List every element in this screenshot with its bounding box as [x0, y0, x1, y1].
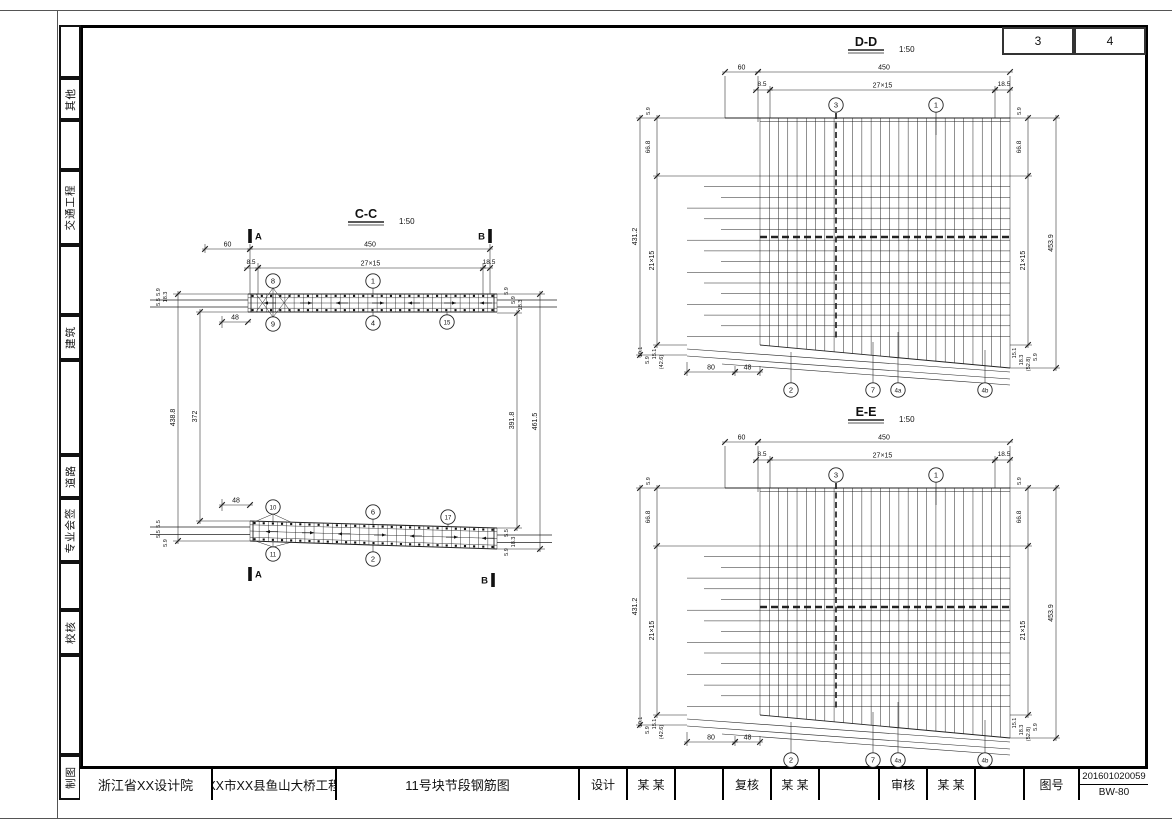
dim-label: 431.2 — [632, 598, 639, 616]
rebar-callout-number: 1 — [934, 101, 938, 110]
rebar-dot — [354, 525, 356, 527]
rebar-dot — [345, 525, 347, 527]
drawing-line — [273, 514, 291, 522]
rebar-dot — [263, 522, 265, 524]
rebar-dot — [464, 309, 466, 311]
rebar-dot — [362, 295, 364, 297]
rebar-dot — [390, 309, 392, 311]
rebar-dot — [252, 309, 254, 311]
dim-label: 450 — [878, 435, 890, 442]
rebar-dot — [299, 523, 301, 525]
rebar-dot — [371, 295, 373, 297]
drawing-sheet: 3 4 其他交通工程建筑道路专业会签校核制图 浙江省XX设计院 XX市XX县鱼山… — [0, 0, 1172, 829]
sidebar-cell-label: 专业会签 — [63, 507, 78, 553]
section-cut-letter: B — [478, 232, 485, 243]
rebar-dot — [464, 295, 466, 297]
dim-label: 21×15 — [649, 621, 656, 641]
flow-arrow — [408, 301, 412, 304]
view-title: E-E — [856, 405, 877, 419]
dim-label: 431.2 — [632, 228, 639, 246]
rebar-dot — [261, 309, 263, 311]
dim-label: 15.1 — [1012, 348, 1018, 359]
dim-label: 5.9 — [504, 287, 510, 295]
flow-arrow — [382, 533, 386, 536]
section-cut-marker — [491, 573, 495, 587]
rebar-dot — [281, 523, 283, 525]
dim-label: 5.9 — [1017, 477, 1023, 485]
rebar-callout-number: 4 — [371, 319, 375, 328]
dim-label: 453.9 — [1048, 604, 1055, 622]
dim-label: 450 — [878, 65, 890, 72]
rebar-dot — [382, 526, 384, 528]
rebar-dot — [353, 295, 355, 297]
view-scale: 1:50 — [399, 217, 415, 226]
rebar-dot — [473, 528, 475, 530]
dim-label: 21×15 — [1020, 251, 1027, 271]
flow-arrow — [264, 301, 268, 304]
sidebar-cell-10: 校核 — [59, 610, 81, 655]
rebar-dot — [327, 541, 329, 543]
rebar-callout-number: 2 — [371, 555, 375, 564]
flow-arrow — [338, 532, 342, 535]
rebar-dot — [473, 295, 475, 297]
section-cut-letter: A — [255, 232, 262, 243]
dim-label: 80 — [707, 365, 715, 372]
rebar-callout-number: 8 — [271, 277, 275, 286]
dim-label: 8.5 — [246, 259, 255, 266]
sidebar-cell-3: 交通工程 — [59, 170, 81, 245]
rebar-callout-number: 7 — [871, 386, 875, 395]
dim-label: 5.9 — [504, 548, 510, 556]
rebar-dot — [254, 538, 256, 540]
dim-label: 15.1 — [1012, 718, 1018, 729]
rebar-dot — [327, 524, 329, 526]
dim-label: 60 — [738, 65, 746, 72]
section-cut-marker — [248, 229, 252, 243]
rebar-callout-number: 3 — [834, 471, 838, 480]
drawing-line — [687, 719, 1010, 742]
dim-label: 48 — [232, 498, 240, 505]
dim-label: 18.3 — [518, 300, 524, 311]
dim-label: 48 — [744, 365, 752, 372]
rebar-dot — [335, 309, 337, 311]
rebar-dot — [353, 309, 355, 311]
dim-label: 21×15 — [1020, 621, 1027, 641]
dim-label: 80 — [707, 735, 715, 742]
rebar-dot — [318, 540, 320, 542]
rebar-dot — [446, 527, 448, 529]
rebar-dot — [409, 526, 411, 528]
dim-label: 18.3 — [163, 292, 169, 303]
view-title: C-C — [355, 207, 377, 221]
rebar-dot — [454, 295, 456, 297]
rebar-dot — [325, 309, 327, 311]
dim-label: 66.8 — [1016, 140, 1023, 153]
view-scale: 1:50 — [899, 45, 915, 54]
rebar-dot — [307, 309, 309, 311]
view-scale: 1:50 — [899, 415, 915, 424]
rebar-dot — [252, 295, 254, 297]
rebar-dot — [491, 295, 493, 297]
rebar-dot — [436, 295, 438, 297]
dim-label: 18.3 — [1019, 355, 1025, 366]
dim-label: 5.5 — [156, 298, 162, 306]
drawing-line — [256, 294, 273, 317]
flow-arrow — [380, 301, 384, 304]
rebar-callout-number: 4a — [895, 759, 902, 765]
dim-label: (42.6) — [659, 355, 665, 370]
rebar-dot — [391, 526, 393, 528]
rebar-dot — [482, 309, 484, 311]
dim-label: 5.9 — [645, 356, 651, 364]
rebar-dot — [473, 309, 475, 311]
rebar-dot — [409, 543, 411, 545]
rebar-dot — [290, 523, 292, 525]
rebar-callout-number: 10 — [270, 506, 277, 512]
dim-label: 391.8 — [509, 412, 516, 430]
rebar-dot — [316, 295, 318, 297]
drawing-line — [722, 734, 1010, 755]
dim-label: 5.9 — [646, 107, 652, 115]
rebar-callout-number: 17 — [445, 516, 452, 522]
rebar-dot — [308, 540, 310, 542]
flow-arrow — [266, 530, 270, 533]
dim-label: 5.9 — [1033, 353, 1039, 361]
sidebar-cell-7: 道路 — [59, 455, 81, 498]
rebar-callout-number: 4b — [982, 389, 989, 395]
dim-label: 5.9 — [646, 477, 652, 485]
rebar-dot — [491, 309, 493, 311]
rebar-dot — [382, 542, 384, 544]
dim-label: 48 — [744, 735, 752, 742]
sidebar-empty-cell — [59, 360, 81, 455]
rebar-dot — [381, 295, 383, 297]
rebar-dot — [491, 546, 493, 548]
rebar-dot — [281, 539, 283, 541]
sidebar-cell-label: 校核 — [63, 621, 78, 644]
rebar-callout-number: 6 — [371, 508, 375, 517]
rebar-dot — [363, 525, 365, 527]
rebar-dot — [336, 524, 338, 526]
dim-label: 66.8 — [645, 510, 652, 523]
sidebar-cell-1: 其他 — [59, 78, 81, 120]
dim-label: 18.3 — [1019, 725, 1025, 736]
sidebar-cell-label: 建筑 — [63, 326, 78, 349]
view-title: D-D — [855, 35, 877, 49]
rebar-dot — [436, 309, 438, 311]
rebar-dot — [270, 309, 272, 311]
rebar-callout-number: 1 — [934, 471, 938, 480]
rebar-dot — [272, 522, 274, 524]
drawing-canvas: C-C1:50AB604508.527×1518.58194154848438.… — [80, 25, 1148, 800]
dim-label: 8.5 — [757, 81, 766, 88]
rebar-dot — [436, 544, 438, 546]
dim-label: 48 — [231, 315, 239, 322]
rebar-dot — [344, 309, 346, 311]
rebar-dot — [298, 309, 300, 311]
sidebar-cell-8: 专业会签 — [59, 498, 81, 562]
rebar-dot — [418, 309, 420, 311]
sidebar-cell-label: 其他 — [63, 88, 78, 111]
drawing-line — [273, 542, 291, 547]
rebar-dot — [254, 522, 256, 524]
dim-label: 453.9 — [1048, 234, 1055, 252]
rebar-dot — [354, 541, 356, 543]
rebar-dot — [318, 524, 320, 526]
rebar-dot — [491, 529, 493, 531]
rebar-dot — [399, 309, 401, 311]
drawing-line — [722, 364, 1010, 385]
section-cut-marker — [488, 229, 492, 243]
rebar-dot — [482, 528, 484, 530]
drawing-line — [250, 531, 497, 539]
rebar-dot — [455, 545, 457, 547]
dim-label: 461.5 — [532, 413, 539, 431]
dim-label: 66.8 — [1016, 510, 1023, 523]
rebar-callout-number: 1 — [371, 277, 375, 286]
rebar-callout-number: 2 — [789, 756, 793, 765]
dim-label: 18.5 — [483, 259, 496, 266]
rebar-callout-number: 9 — [271, 320, 275, 329]
rebar-dot — [272, 539, 274, 541]
dim-label: 27×15 — [873, 453, 893, 460]
dim-label: 5.5 — [504, 529, 510, 537]
drawing-line — [760, 715, 1010, 738]
dim-label: 27×15 — [873, 83, 893, 90]
rebar-dot — [279, 309, 281, 311]
rebar-dot — [464, 528, 466, 530]
rebar-dot — [299, 540, 301, 542]
dim-label: 18.5 — [998, 81, 1011, 88]
dim-label: 5.9 — [1017, 107, 1023, 115]
rebar-dot — [391, 543, 393, 545]
dim-label: 5.9 — [156, 288, 162, 296]
rebar-dot — [372, 542, 374, 544]
rebar-callout-number: 11 — [270, 553, 277, 559]
rebar-dot — [427, 309, 429, 311]
dim-label: 438.8 — [170, 409, 177, 427]
dim-label: 5.9 — [511, 296, 517, 304]
rebar-callout-number: 3 — [834, 101, 838, 110]
section-cut-marker — [248, 567, 252, 581]
sidebar-cell-5: 建筑 — [59, 315, 81, 360]
rebar-dot — [436, 527, 438, 529]
rebar-dot — [372, 525, 374, 527]
rebar-dot — [307, 295, 309, 297]
rebar-dot — [261, 295, 263, 297]
section-ee-drawing: E-E1:50604508.527×1518.531274a4b431.221×… — [632, 405, 1060, 767]
sheet-top-trim-line — [0, 10, 1172, 11]
dim-label: 18.3 — [511, 537, 517, 548]
rebar-dot — [270, 295, 272, 297]
rebar-dot — [399, 295, 401, 297]
dim-label: 15.1 — [652, 349, 658, 360]
rebar-dot — [427, 295, 429, 297]
rebar-dot — [464, 545, 466, 547]
dim-label: (52.8) — [1026, 357, 1032, 372]
rebar-callout-number: 7 — [871, 756, 875, 765]
rebar-callout-number: 4a — [895, 389, 902, 395]
rebar-dot — [345, 541, 347, 543]
dim-label: 15.1 — [652, 719, 658, 730]
dim-label: 5.9 — [163, 539, 169, 547]
flow-arrow — [454, 536, 458, 539]
section-cut-letter: B — [481, 576, 488, 587]
rebar-dot — [336, 541, 338, 543]
rebar-dot — [408, 295, 410, 297]
sidebar-cell-label: 道路 — [63, 465, 78, 488]
drawing-line — [687, 349, 1010, 372]
rebar-dot — [454, 309, 456, 311]
flow-arrow — [452, 301, 456, 304]
dim-label: (52.8) — [1026, 727, 1032, 742]
rebar-dot — [325, 295, 327, 297]
rebar-dot — [290, 539, 292, 541]
rebar-dot — [418, 527, 420, 529]
sidebar-cell-label: 制图 — [63, 766, 78, 789]
rebar-dot — [427, 544, 429, 546]
rebar-dot — [298, 295, 300, 297]
rebar-callout-number: 4b — [982, 759, 989, 765]
flow-arrow — [410, 534, 414, 537]
sidebar-empty-cell — [59, 655, 81, 755]
dim-label: 372 — [192, 411, 199, 423]
rebar-dot — [408, 309, 410, 311]
flow-arrow — [480, 301, 484, 304]
rebar-dot — [316, 309, 318, 311]
rebar-dot — [445, 295, 447, 297]
sidebar-empty-cell — [59, 562, 81, 610]
rebar-dot — [482, 546, 484, 548]
dim-label: 60 — [738, 435, 746, 442]
drawing-line — [760, 345, 1010, 368]
rebar-dot — [473, 545, 475, 547]
rebar-dot — [427, 527, 429, 529]
rebar-dot — [446, 544, 448, 546]
rebar-dot — [263, 538, 265, 540]
sidebar-empty-cell — [59, 25, 81, 78]
dim-label: 21×15 — [649, 251, 656, 271]
dim-label: (42.6) — [659, 725, 665, 740]
rebar-dot — [308, 524, 310, 526]
rebar-dot — [418, 544, 420, 546]
sidebar-cell-label: 交通工程 — [63, 185, 78, 231]
dim-label: 450 — [364, 242, 376, 249]
rebar-dot — [381, 309, 383, 311]
flow-arrow — [308, 301, 312, 304]
rebar-callout-number: 2 — [789, 386, 793, 395]
section-cc-drawing: C-C1:50AB604508.527×1518.58194154848438.… — [150, 207, 557, 587]
sidebar-empty-cell — [59, 245, 81, 315]
drawing-line — [256, 514, 273, 521]
dim-label: 10.1 — [638, 717, 644, 728]
flow-arrow — [336, 301, 340, 304]
rebar-dot — [400, 526, 402, 528]
rebar-dot — [362, 309, 364, 311]
sheet-bottom-trim-line — [0, 818, 1172, 819]
rebar-dot — [482, 295, 484, 297]
sidebar-empty-cell — [59, 120, 81, 170]
drawing-line — [687, 356, 1010, 379]
dim-label: 8.5 — [757, 451, 766, 458]
rebar-dot — [371, 309, 373, 311]
section-dd-drawing: D-D1:50604508.527×1518.531274a4b431.221×… — [632, 35, 1060, 397]
dim-label: 60 — [224, 242, 232, 249]
rebar-dot — [400, 543, 402, 545]
rebar-dot — [390, 295, 392, 297]
dim-label: 5.9 — [645, 726, 651, 734]
rebar-dot — [344, 295, 346, 297]
drawing-line — [687, 726, 1010, 749]
dim-label: 10.1 — [638, 347, 644, 358]
rebar-dot — [418, 295, 420, 297]
rebar-dot — [445, 309, 447, 311]
flow-arrow — [482, 537, 486, 540]
dim-label: 5.5 — [156, 520, 162, 528]
rebar-dot — [455, 528, 457, 530]
dim-label: 18.5 — [998, 451, 1011, 458]
dim-label: 5.9 — [1033, 723, 1039, 731]
dim-label: 5.5 — [156, 530, 162, 538]
rebar-callout-number: 15 — [444, 321, 451, 327]
sheet-left-trim-line — [57, 10, 58, 819]
dim-label: 66.8 — [645, 140, 652, 153]
dim-label: 27×15 — [361, 261, 381, 268]
flow-arrow — [310, 531, 314, 534]
rebar-dot — [335, 295, 337, 297]
section-cut-letter: A — [255, 570, 262, 581]
sidebar-cell-12: 制图 — [59, 755, 81, 800]
rebar-dot — [363, 542, 365, 544]
